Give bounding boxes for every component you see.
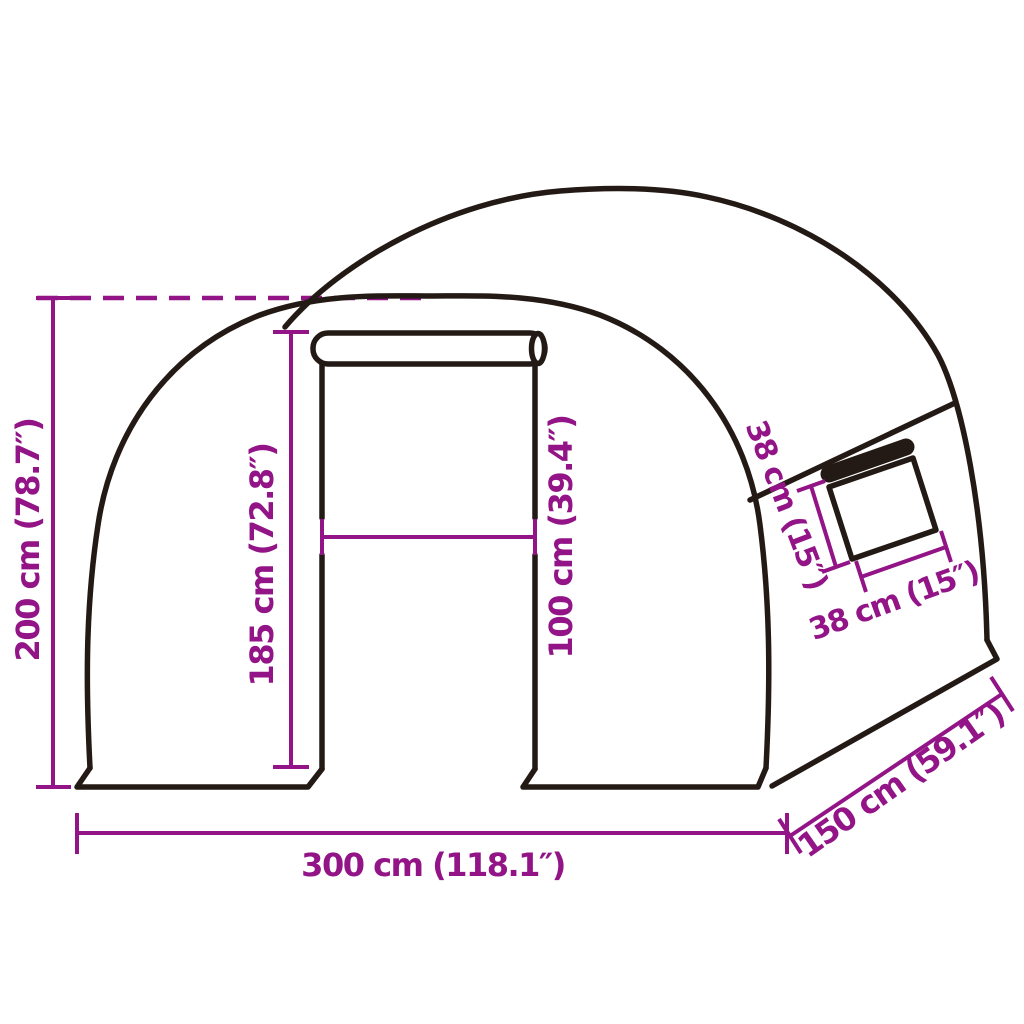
total-depth-dimension: 150 cm (59.1″) xyxy=(779,677,1013,865)
total-height-dimension: 200 cm (78.7″) xyxy=(9,298,71,787)
door-width-dimension-line xyxy=(322,519,535,555)
door-width-dimension: 100 cm (39.4″) xyxy=(322,416,580,659)
ground-line-left xyxy=(77,768,322,787)
door-height-dimension: 185 cm (72.8″) xyxy=(243,332,309,767)
total-width-dimension: 300 cm (118.1″) xyxy=(77,813,787,884)
total-height-label: 200 cm (78.7″) xyxy=(9,419,47,662)
door-roll xyxy=(313,333,545,364)
ground-line-right xyxy=(523,768,766,787)
greenhouse-dimension-diagram: 200 cm (78.7″) 185 cm (72.8″) 100 cm (39… xyxy=(0,0,1024,1024)
door-height-label: 185 cm (72.8″) xyxy=(243,444,281,687)
greenhouse-outline xyxy=(77,189,997,787)
back-arch-outline xyxy=(285,189,987,640)
total-width-label: 300 cm (118.1″) xyxy=(301,846,565,884)
door-roll-end-cap xyxy=(532,334,545,364)
window-height-label: 38 cm (15″) xyxy=(738,416,834,595)
diagram-canvas: 200 cm (78.7″) 185 cm (72.8″) 100 cm (39… xyxy=(0,0,1024,1024)
door-width-label: 100 cm (39.4″) xyxy=(542,416,580,659)
total-depth-label: 150 cm (59.1″) xyxy=(791,695,1012,865)
